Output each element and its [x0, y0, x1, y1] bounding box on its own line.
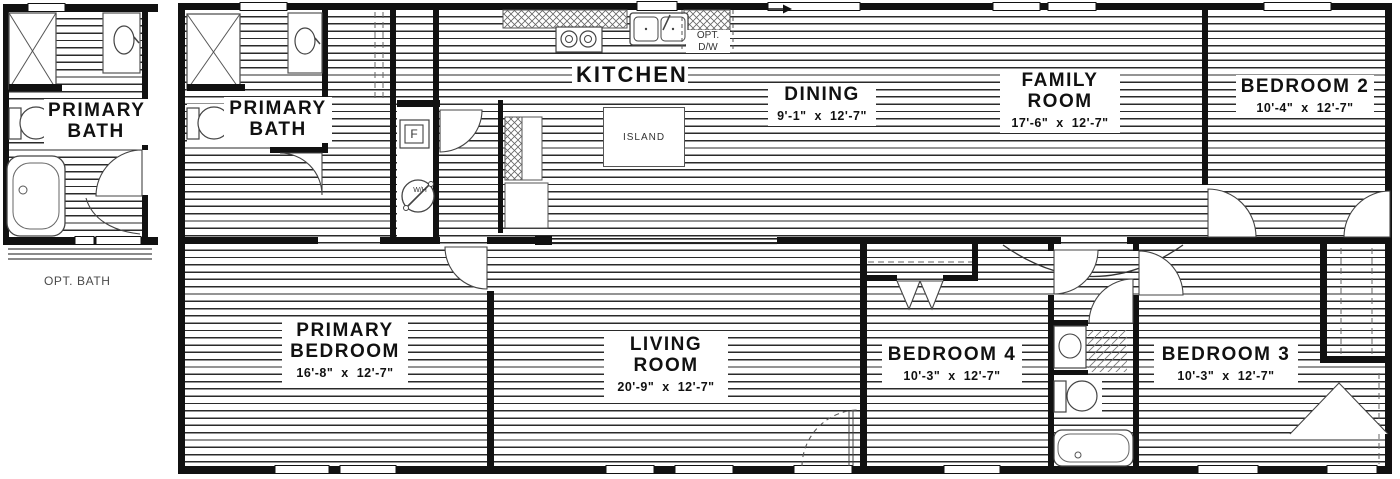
floor-plan: PRIMARY BATH OPT. BATH PRIMARY BATH KITC…: [0, 0, 1400, 479]
room-label-primary-bath-opt: PRIMARY BATH: [44, 99, 148, 145]
bedroom3-door-arc: [1139, 251, 1183, 295]
bath2-sink-icon: [1054, 326, 1086, 368]
linen-shelves-icon: [1088, 330, 1127, 372]
primary-bath-door-arc: [280, 153, 322, 195]
vanity-sink-icon: [103, 13, 140, 73]
closet-door-arc: [1344, 191, 1390, 237]
bedroom3-closet-doors-icon: [1290, 383, 1388, 434]
furnace-label: F: [405, 125, 423, 143]
bath2-fixtures: [1054, 326, 1133, 466]
bathtub-icon: [7, 156, 65, 236]
primary-bath-sink-icon: [288, 13, 322, 73]
opt-bath-caption: OPT. BATH: [44, 274, 111, 288]
water-heater-icon: [402, 180, 434, 212]
kitchen-island: ISLAND: [603, 107, 685, 167]
utility-door-arc: [440, 110, 482, 152]
primary-bedroom-door-arc: [445, 247, 487, 289]
water-heater-label: W/H: [408, 187, 432, 195]
opt-dw-label: OPT. D/W: [686, 30, 730, 53]
room-label-kitchen: KITCHEN: [572, 61, 688, 89]
room-label-primary-bath: PRIMARY BATH: [224, 97, 332, 143]
bath2-toilet-icon: [1054, 378, 1102, 416]
open-floor-line: [552, 238, 777, 244]
main-interior-walls: [185, 10, 1392, 467]
room-label-bedroom4: BEDROOM 4 10'-3" x 12'-7": [882, 343, 1022, 386]
bath2-tub-icon: [1054, 430, 1133, 466]
living-room-opt-door: [802, 410, 858, 466]
room-label-bedroom2: BEDROOM 2 10'-4" x 12'-7": [1236, 75, 1374, 118]
door-arcs: [445, 189, 1390, 323]
primary-bath-shower-icon: [187, 14, 245, 91]
room-label-primary-bedroom: PRIMARY BEDROOM 16'-8" x 12'-7": [282, 319, 408, 383]
shower-icon: [9, 13, 62, 91]
bedroom4-door-arc: [1054, 250, 1098, 294]
section-break-lines: [8, 249, 152, 259]
bath2-door-arc: [1089, 279, 1133, 323]
island-label: ISLAND: [623, 132, 665, 143]
bedroom2-door-arc: [1208, 189, 1256, 237]
room-label-bedroom3: BEDROOM 3 10'-3" x 12'-7": [1154, 343, 1298, 386]
room-label-family-room: FAMILY ROOM 17'-6" x 12'-7": [1000, 69, 1120, 133]
plan-linework: [0, 0, 1400, 479]
kitchen-sink-icon: [630, 13, 688, 45]
room-label-dining: DINING 9'-1" x 12'-7": [768, 83, 876, 126]
range-icon: [556, 27, 602, 52]
room-label-living-room: LIVING ROOM 20'-9" x 12'-7": [604, 333, 728, 397]
bifold-doors-icon: [897, 281, 943, 309]
opt-bath-door-arcs: [86, 150, 142, 234]
